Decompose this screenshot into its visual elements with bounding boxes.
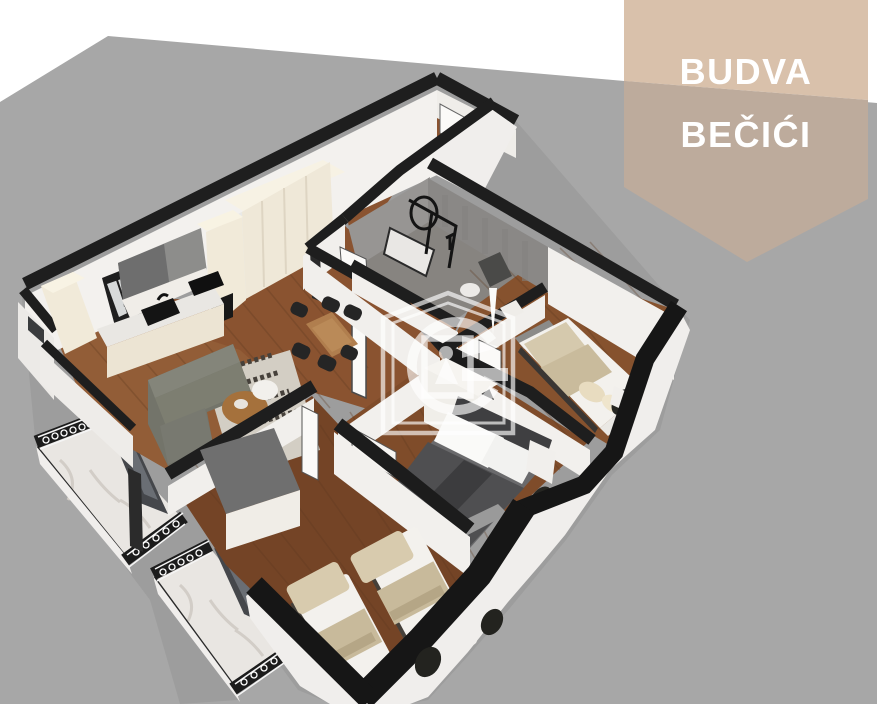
svg-text:BUDVA: BUDVA [680, 51, 813, 92]
svg-text:BEČIĆI: BEČIĆI [680, 113, 811, 155]
